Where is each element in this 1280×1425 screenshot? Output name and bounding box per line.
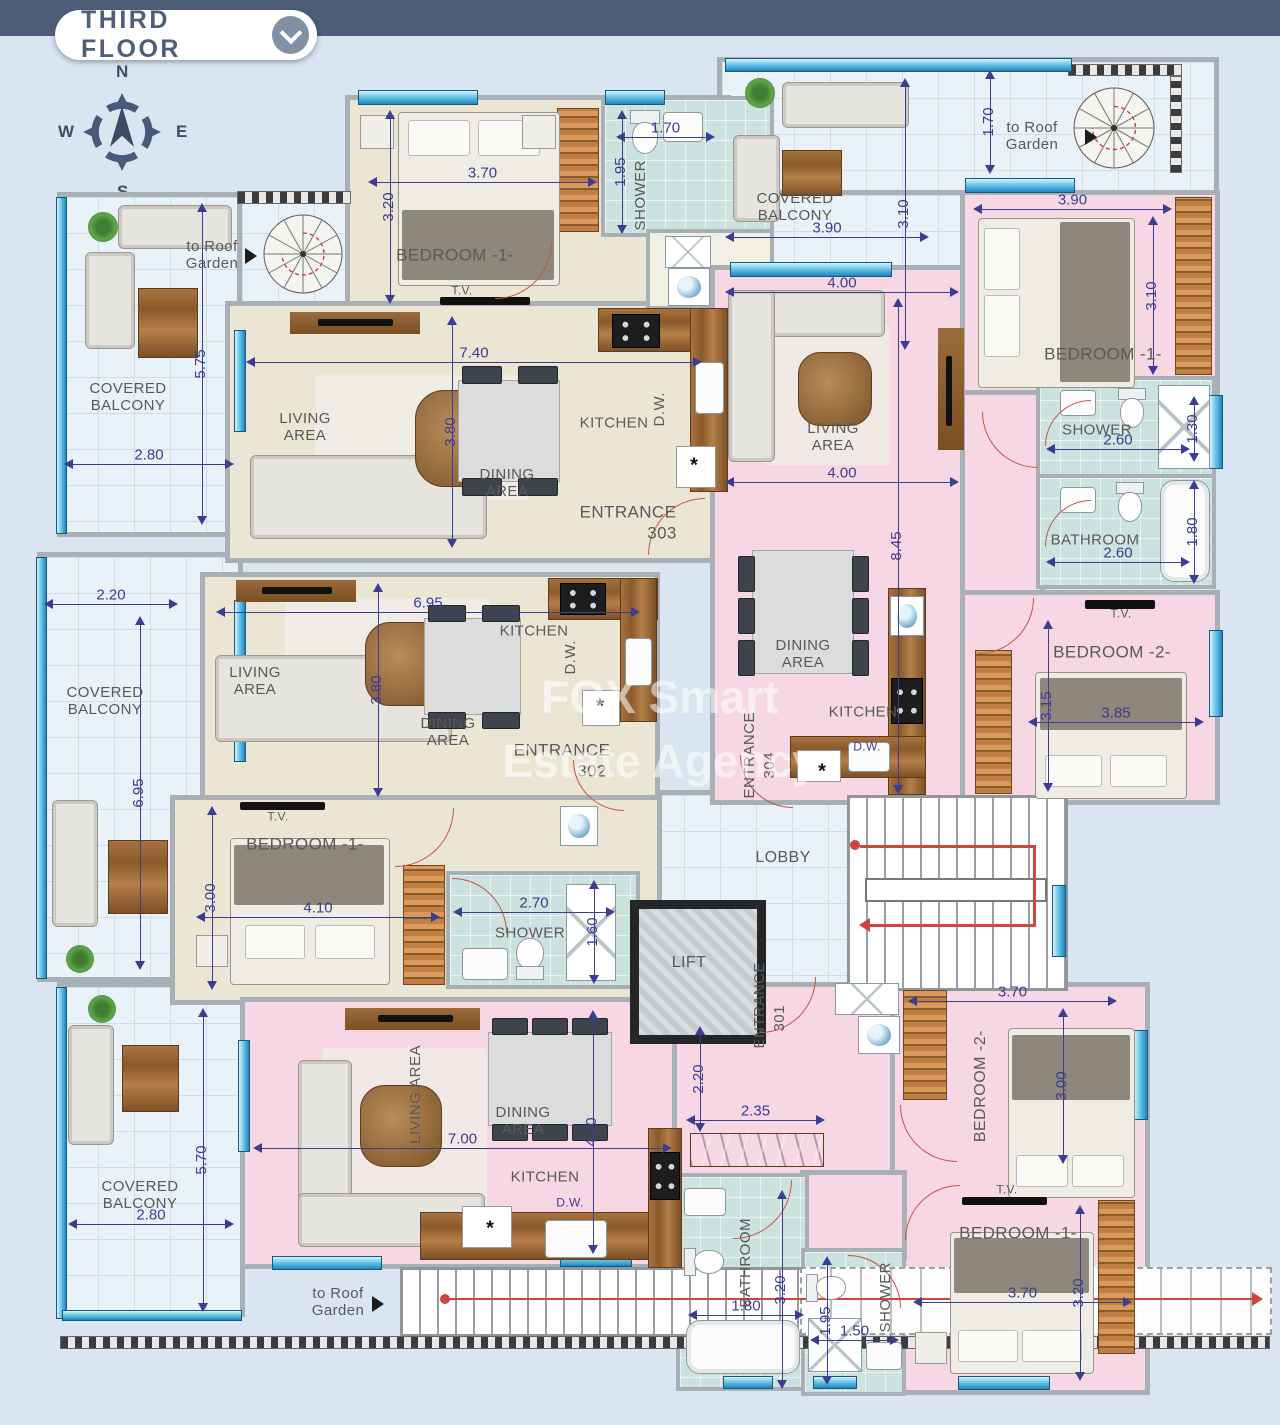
- outdoor-table: [782, 150, 842, 196]
- room-label-kitchen-303: KITCHEN: [580, 416, 649, 433]
- dishwasher-label: D.W.: [556, 1196, 584, 1209]
- stair-route-arrow: [852, 918, 870, 932]
- pillow: [1110, 755, 1167, 787]
- room-label-bedroom2-304: BEDROOM -2-: [1053, 642, 1171, 661]
- pillow: [984, 295, 1020, 357]
- wardrobe: [403, 865, 445, 985]
- toilet-icon: [1118, 492, 1142, 522]
- stair-route-start: [850, 840, 860, 850]
- dim-304-living-h: 8.45: [898, 300, 899, 792]
- room-label-dining-302: DINING AREA: [400, 716, 496, 750]
- dim-301-bedroom2-h: 3.00: [1063, 1010, 1064, 1162]
- entrance-label-302: ENTRANCE: [514, 740, 611, 759]
- window: [238, 1040, 250, 1152]
- dim-301-bedroom2-w: 3.70: [910, 1001, 1115, 1002]
- dishwasher-label: D.W.: [563, 640, 580, 675]
- balcony-label-mid-left: COVERED BALCONY: [57, 685, 153, 719]
- pillow: [245, 925, 305, 959]
- compass-icon: [72, 82, 172, 182]
- dim-304-bathroom-h: 1.80: [1194, 482, 1195, 582]
- pillow: [315, 925, 375, 959]
- wardrobe: [557, 108, 599, 232]
- roof-garden-arrow: [245, 248, 265, 264]
- dim-302-bedroom1-w: 4.10: [198, 917, 438, 918]
- dim-303-bedroom1-w: 3.70: [370, 182, 595, 183]
- chair: [462, 366, 502, 384]
- tv-label: T.V.: [267, 810, 288, 823]
- window: [1209, 630, 1223, 717]
- balcony-rail: [56, 197, 67, 534]
- staircase-landing: [865, 878, 1047, 902]
- sink-icon: [462, 948, 508, 980]
- dim-303-living-h: 3.80: [452, 318, 453, 546]
- tv-icon: [440, 297, 530, 305]
- dim-301-hall-h: 2.20: [700, 1028, 701, 1130]
- room-label-dining-304: DINING AREA: [755, 638, 851, 672]
- room-label-living-303: LIVING AREA: [257, 411, 353, 445]
- window: [723, 1376, 773, 1389]
- room-label-living-301: LIVING AREA: [408, 1045, 425, 1144]
- toilet-icon: [694, 1250, 724, 1274]
- dim-301-hall-w: 2.35: [688, 1120, 823, 1121]
- blanket: [1012, 1035, 1130, 1100]
- kitchen-sink: [625, 638, 652, 686]
- pillow: [1022, 1330, 1082, 1362]
- room-label-dining-303: DINING AREA: [459, 467, 555, 501]
- kitchen-sink: [695, 362, 724, 414]
- spiral-staircase-top-right: [1072, 86, 1156, 170]
- window: [1133, 1030, 1148, 1120]
- page-title: THIRD FLOOR: [81, 6, 272, 64]
- shoe-rack: [690, 1133, 824, 1167]
- window: [813, 1376, 857, 1389]
- room-label-kitchen-304: KITCHEN: [829, 705, 898, 722]
- pillow: [984, 228, 1020, 290]
- room-label-shower-303: SHOWER: [633, 160, 650, 231]
- chair: [852, 598, 869, 634]
- dim-301-shower-w: 1.50: [812, 1340, 897, 1341]
- floor-plan: THIRD FLOOR N E S W: [0, 0, 1280, 1425]
- entrance-label-303: ENTRANCE: [580, 502, 677, 521]
- tv-icon: [378, 1015, 453, 1022]
- tv-label: T.V.: [451, 284, 472, 297]
- window: [730, 262, 892, 277]
- sink-symbol: *: [690, 455, 698, 478]
- dim-301-shower-h: 1.95: [827, 1258, 828, 1383]
- chair: [738, 598, 755, 634]
- plant: [88, 995, 116, 1023]
- tv-icon: [962, 1197, 1047, 1205]
- stove-icon: [612, 314, 660, 348]
- roof-route-arrow: [1252, 1292, 1270, 1306]
- outdoor-table: [138, 288, 198, 358]
- outdoor-sofa: [782, 82, 909, 128]
- room-label-living-304: LIVING AREA: [785, 421, 881, 455]
- room-label-kitchen-301: KITCHEN: [511, 1170, 580, 1187]
- stove-icon: [560, 583, 606, 615]
- tv-icon: [262, 587, 332, 594]
- toilet-icon: [516, 966, 544, 980]
- entrance-label-304: ENTRANCE: [742, 712, 759, 799]
- hall-closet: [835, 983, 899, 1015]
- balcony-label-top-right: COVERED BALCONY: [747, 191, 843, 225]
- nightstand: [522, 115, 556, 149]
- stair-route: [1033, 845, 1036, 927]
- window: [605, 90, 665, 105]
- washing-machine-icon: [858, 1016, 900, 1054]
- tv-label: T.V.: [1110, 607, 1131, 620]
- lobby-label: LOBBY: [755, 849, 810, 867]
- pillow: [958, 1330, 1018, 1362]
- window: [358, 90, 478, 105]
- dim-balcony-ml-h: 6.95: [140, 618, 141, 968]
- dim-balcony-bl-w: 2.80: [70, 1224, 232, 1225]
- plant: [88, 212, 118, 242]
- room-label-dining-301: DINING AREA: [475, 1105, 571, 1139]
- wardrobe: [903, 990, 947, 1100]
- fridge-icon: [890, 596, 924, 636]
- washing-machine-icon: [560, 806, 598, 846]
- outdoor-sofa: [68, 1025, 114, 1145]
- roof-garden-arrow: [372, 1296, 392, 1312]
- pillow: [1045, 755, 1102, 787]
- room-label-shower-304: SHOWER: [1062, 423, 1132, 440]
- tv-icon: [318, 319, 393, 326]
- wardrobe: [1098, 1200, 1135, 1354]
- entrance-label-301: ENTRANCE: [752, 962, 769, 1049]
- outdoor-sofa: [52, 800, 98, 927]
- dim-304-shower-h: 1.30: [1194, 398, 1195, 460]
- outdoor-table: [108, 840, 168, 914]
- balcony-rail: [62, 1310, 242, 1321]
- dim-303-shower-h: 1.95: [622, 112, 623, 232]
- sink-symbol: *: [818, 761, 826, 784]
- room-label-bedroom1-304: BEDROOM -1-: [1044, 344, 1162, 363]
- balcony-rail: [725, 58, 1072, 72]
- dim-303-bedroom1-h: 3.20: [390, 112, 391, 302]
- window: [272, 1256, 382, 1270]
- dim-302-shower-w: 2.70: [455, 912, 613, 913]
- blanket: [234, 845, 384, 905]
- dim-304-living-w-mid: 4.00: [727, 482, 957, 483]
- dim-balcony-ml-w: 2.20: [46, 604, 176, 605]
- dim-301-bedroom1-w: 3.70: [915, 1302, 1130, 1303]
- window: [1209, 395, 1223, 469]
- dim-303-shower-w: 1.70: [618, 137, 713, 138]
- room-label-bedroom1-302: BEDROOM -1-: [246, 834, 364, 853]
- chair: [738, 640, 755, 676]
- dim-302-shower-h: 1.60: [594, 882, 595, 982]
- chevron-down-icon[interactable]: [272, 16, 309, 54]
- balcony-label-top-left: COVERED BALCONY: [80, 381, 176, 415]
- washing-machine-icon: [668, 268, 710, 306]
- coffee-table: [798, 352, 872, 426]
- room-label-bedroom1-303: BEDROOM -1-: [396, 245, 514, 264]
- room-label-bathroom-301: BATHROOM: [738, 1218, 755, 1308]
- dishwasher-label: D.W.: [652, 392, 669, 427]
- balcony-rail: [36, 557, 47, 979]
- dim-301-bathroom-w: 1.80: [690, 1315, 802, 1316]
- room-label-living-302: LIVING AREA: [207, 665, 303, 699]
- dishwasher-label: D.W.: [853, 740, 881, 753]
- roof-garden-label-2: to Roof Garden: [984, 120, 1080, 154]
- tv-label: T.V.: [996, 1183, 1017, 1196]
- chair: [492, 1018, 528, 1035]
- compass-e: E: [176, 122, 187, 142]
- dashed-edge: [1170, 76, 1182, 173]
- pillow: [408, 120, 470, 156]
- dim-balcony-tr-w: 3.90: [727, 237, 927, 238]
- lift-shaft: [630, 900, 766, 1044]
- floor-selector[interactable]: THIRD FLOOR: [55, 10, 317, 60]
- sofa: [728, 290, 775, 462]
- window: [1052, 885, 1066, 957]
- room-label-kitchen-302: KITCHEN: [500, 624, 569, 641]
- roof-garden-arrow: [1085, 129, 1105, 145]
- sink-icon: [866, 1342, 902, 1370]
- sink-symbol: *: [596, 696, 604, 719]
- sink-symbol: *: [486, 1218, 494, 1241]
- stair-route: [866, 924, 1036, 927]
- stove-icon: [650, 1152, 680, 1200]
- pillow: [1072, 1155, 1124, 1187]
- dim-304-bathroom-w: 2.60: [1048, 562, 1188, 563]
- plant: [745, 78, 775, 108]
- chair: [738, 556, 755, 592]
- dim-304-shower-w: 2.60: [1048, 449, 1188, 450]
- apt301-connector: [805, 1175, 902, 1255]
- nightstand: [360, 115, 394, 149]
- dim-304-bedroom2-h: 3.15: [1048, 622, 1049, 790]
- coffee-table: [360, 1085, 442, 1167]
- sink-icon: [684, 1188, 726, 1216]
- balcony-rail: [56, 987, 67, 1319]
- chair: [852, 640, 869, 676]
- toilet-icon: [816, 1276, 846, 1300]
- entrance-number-304: 304: [762, 752, 779, 779]
- dim-302-living-w: 6.95: [218, 612, 638, 613]
- dim-304-bedroom1-w: 3.90: [975, 209, 1170, 210]
- chair: [482, 605, 520, 622]
- outdoor-table: [122, 1045, 179, 1112]
- dim-balcony-tl-w: 2.80: [66, 464, 232, 465]
- outdoor-chair: [85, 252, 135, 349]
- dim-301-bathroom-h: 3.20: [782, 1192, 783, 1387]
- chair: [518, 366, 558, 384]
- dashed-edge: [1068, 64, 1182, 76]
- tv-icon: [946, 356, 952, 426]
- lift-label: LIFT: [672, 954, 707, 972]
- room-label-bedroom2-301: BEDROOM -2-: [972, 1030, 990, 1142]
- window: [234, 330, 246, 432]
- window: [958, 1376, 1050, 1390]
- compass-w: W: [58, 122, 74, 142]
- dim-301-living-w: 7.00: [255, 1148, 670, 1149]
- stair-route: [860, 845, 1035, 848]
- balcony-label-bottom-left: COVERED BALCONY: [92, 1179, 188, 1213]
- wardrobe: [975, 650, 1012, 794]
- room-label-shower-301: SHOWER: [878, 1262, 895, 1333]
- compass-n: N: [116, 62, 128, 82]
- chair: [532, 1018, 568, 1035]
- spiral-staircase-top-left: [262, 213, 344, 295]
- room-label-shower-302: SHOWER: [495, 926, 565, 943]
- wardrobe: [1175, 197, 1212, 375]
- dim-301-living-h: 4.10: [593, 1012, 594, 1252]
- dim-304-living-w-top: 4.00: [727, 292, 957, 293]
- entrance-number-302: 302: [577, 761, 607, 780]
- chair: [572, 1018, 608, 1035]
- dim-301-bedroom1-h: 3.20: [1080, 1207, 1081, 1379]
- dim-302-bedroom1-h: 3.00: [212, 808, 213, 988]
- dim-304-bedroom2-w: 3.85: [1030, 722, 1202, 723]
- dim-303-living-w: 7.40: [248, 362, 700, 363]
- shower-tray: [665, 236, 711, 268]
- plant: [66, 945, 94, 973]
- room-label-bathroom-304: BATHROOM: [1051, 533, 1140, 550]
- dashed-edge: [237, 191, 351, 204]
- dim-302-living-h: 3.80: [378, 585, 379, 795]
- entrance-number-303: 303: [647, 523, 677, 542]
- nightstand: [915, 1332, 947, 1364]
- dim-balcony-tr-h: 3.10: [905, 80, 906, 348]
- room-label-bedroom1-301: BEDROOM -1-: [959, 1223, 1077, 1242]
- dim-balcony-bl-h: 5.70: [203, 1010, 204, 1310]
- entrance-number-301: 301: [772, 1005, 789, 1032]
- chair: [852, 556, 869, 592]
